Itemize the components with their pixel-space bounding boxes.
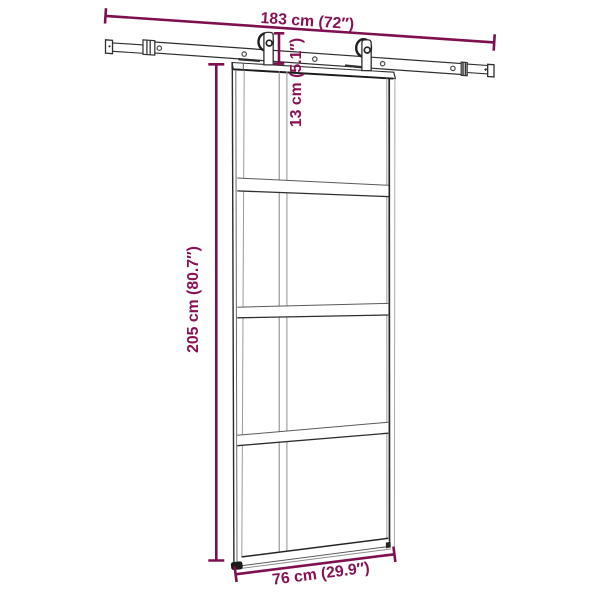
svg-text:205 cm (80.7″): 205 cm (80.7″) (185, 246, 202, 353)
svg-text:13 cm (5.1″): 13 cm (5.1″) (288, 38, 305, 127)
